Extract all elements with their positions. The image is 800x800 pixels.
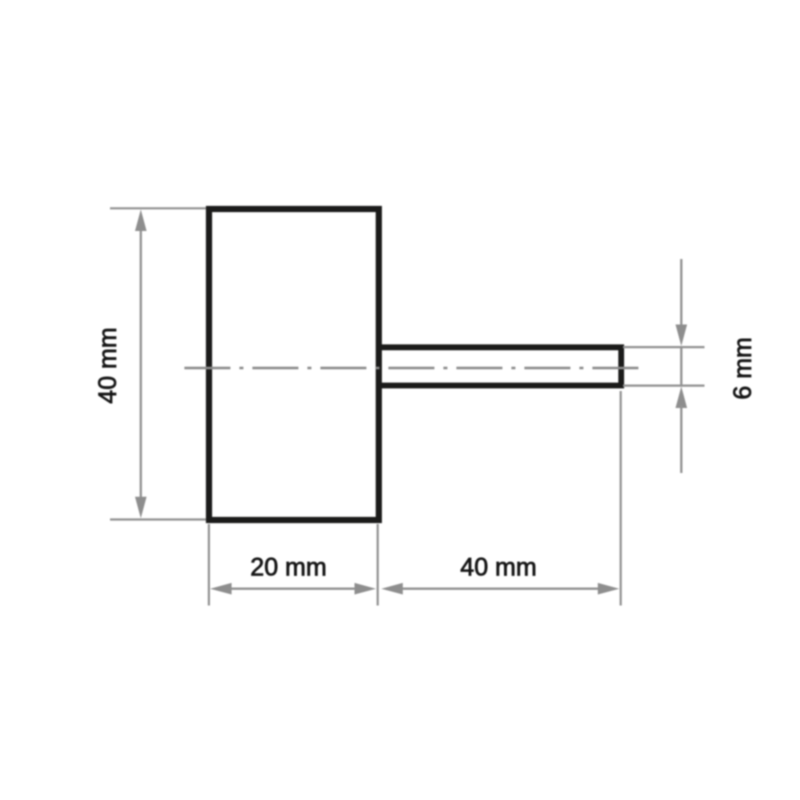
svg-text:40 mm: 40 mm bbox=[94, 327, 122, 403]
svg-text:40 mm: 40 mm bbox=[460, 553, 536, 581]
svg-text:20 mm: 20 mm bbox=[250, 553, 326, 581]
svg-text:6 mm: 6 mm bbox=[729, 337, 757, 400]
